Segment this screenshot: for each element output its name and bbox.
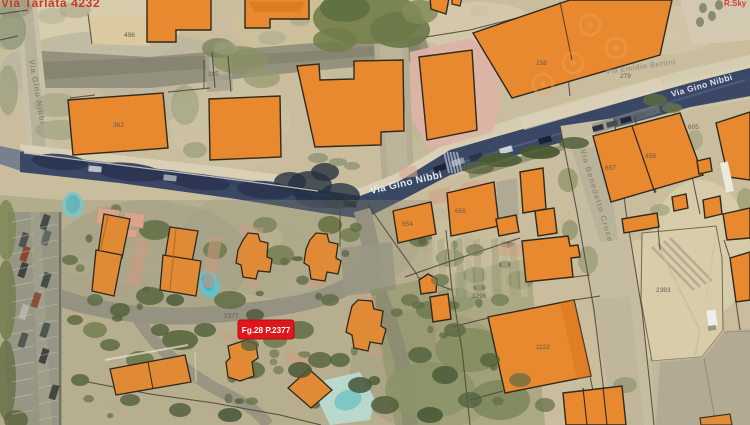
svg-text:1296: 1296 (472, 293, 487, 300)
svg-text:656: 656 (455, 208, 466, 215)
svg-text:Via Tarlata 4232: Via Tarlata 4232 (1, 0, 100, 10)
svg-text:605: 605 (688, 124, 699, 131)
svg-text:2377: 2377 (224, 313, 239, 320)
svg-text:657: 657 (605, 165, 616, 172)
svg-text:385: 385 (208, 71, 219, 78)
svg-text:R.Sky: R.Sky (724, 0, 747, 8)
svg-text:279: 279 (620, 73, 631, 80)
svg-text:382: 382 (113, 122, 124, 129)
svg-text:1122: 1122 (536, 344, 550, 351)
svg-text:158: 158 (536, 60, 547, 67)
svg-text:Fg.28 P.2377: Fg.28 P.2377 (242, 326, 291, 335)
svg-text:458: 458 (645, 153, 656, 160)
svg-text:496: 496 (124, 32, 135, 39)
svg-text:2383: 2383 (656, 287, 671, 294)
svg-text:654: 654 (402, 221, 413, 228)
